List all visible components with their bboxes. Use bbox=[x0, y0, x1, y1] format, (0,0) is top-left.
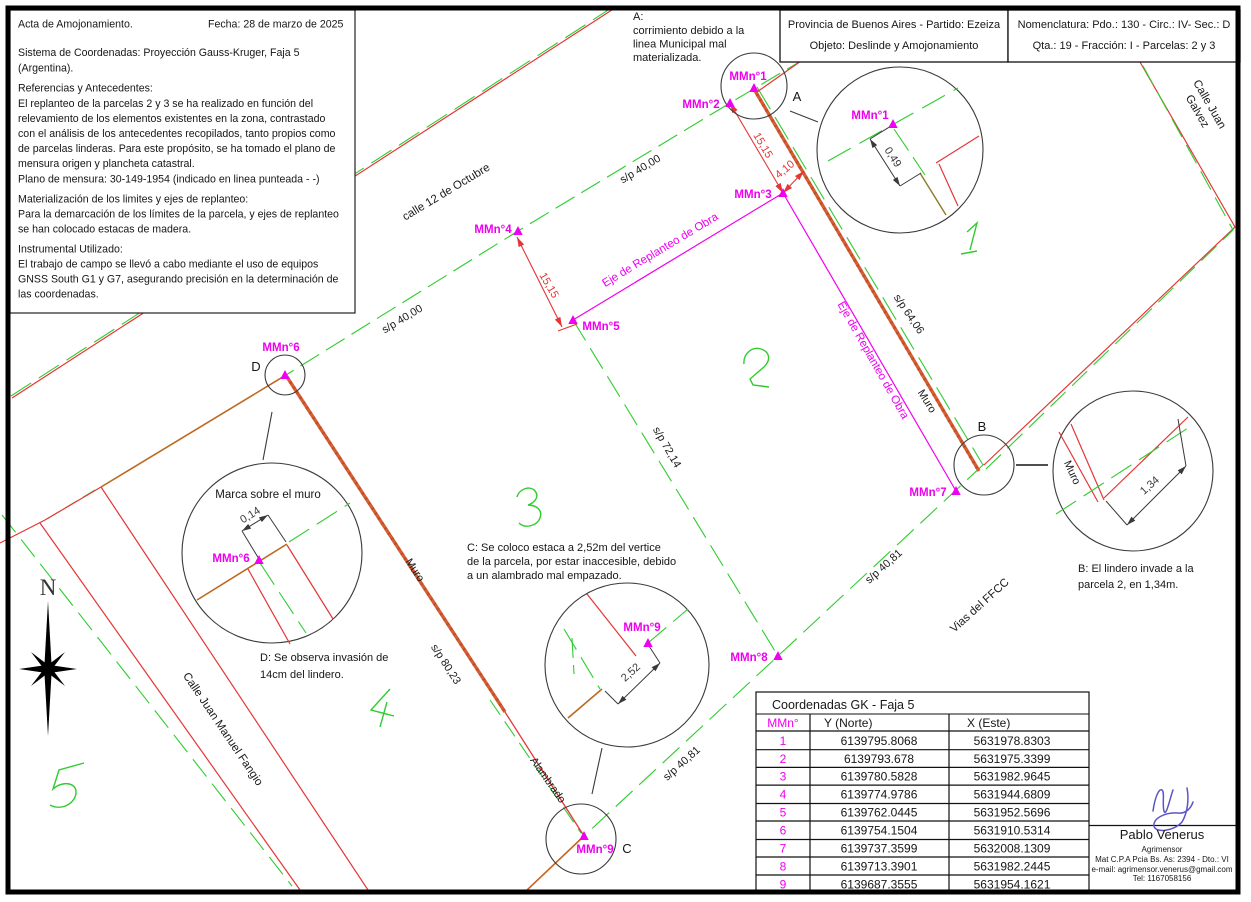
svg-text:6139774.9786: 6139774.9786 bbox=[841, 788, 918, 802]
svg-text:8: 8 bbox=[780, 860, 787, 874]
svg-text:5631978.8303: 5631978.8303 bbox=[974, 734, 1051, 748]
svg-text:relevamiento de los elementos: relevamiento de los elementos existentes… bbox=[18, 113, 326, 125]
svg-text:MMn°3: MMn°3 bbox=[734, 189, 771, 201]
svg-text:Para la demarcación de los lím: Para la demarcación de los límites de la… bbox=[18, 208, 339, 220]
svg-text:A:: A: bbox=[633, 11, 643, 23]
svg-text:5631975.3399: 5631975.3399 bbox=[974, 752, 1051, 766]
svg-text:corrimiento debido a la: corrimiento debido a la bbox=[633, 25, 745, 37]
svg-text:D: Se observa invasión de: D: Se observa invasión de bbox=[260, 652, 388, 664]
svg-text:MMn°1: MMn°1 bbox=[851, 110, 889, 122]
svg-text:MMn°1: MMn°1 bbox=[729, 71, 767, 83]
svg-text:Tel: 1167058156: Tel: 1167058156 bbox=[1133, 874, 1192, 883]
svg-text:6139780.5828: 6139780.5828 bbox=[841, 770, 918, 784]
svg-text:El trabajo de campo se llevó a: El trabajo de campo se llevó a cabo medi… bbox=[18, 259, 318, 271]
svg-text:X (Este): X (Este) bbox=[967, 716, 1010, 730]
svg-text:El replanteo de la parcelas 2: El replanteo de la parcelas 2 y 3 se ha … bbox=[18, 98, 313, 110]
svg-text:Plano de mensura: 30-149-1954: Plano de mensura: 30-149-1954 (indicado … bbox=[18, 173, 320, 185]
svg-text:Pablo Venerus: Pablo Venerus bbox=[1120, 827, 1205, 842]
svg-text:6139793.678: 6139793.678 bbox=[844, 752, 914, 766]
svg-text:5631982.9645: 5631982.9645 bbox=[974, 770, 1051, 784]
svg-text:se han colocado estacas de mad: se han colocado estacas de madera. bbox=[18, 223, 191, 235]
svg-text:N: N bbox=[40, 575, 57, 600]
svg-text:C: Se coloco estaca a 2,52m de: C: Se coloco estaca a 2,52m del vertice bbox=[467, 542, 661, 554]
svg-text:A: A bbox=[793, 89, 802, 104]
svg-text:Agrimensor: Agrimensor bbox=[1142, 845, 1183, 854]
svg-text:Referencias y Antecedentes:: Referencias y Antecedentes: bbox=[18, 83, 153, 95]
svg-text:MMn°5: MMn°5 bbox=[582, 321, 620, 333]
svg-text:Provincia de Buenos Aires - Pa: Provincia de Buenos Aires - Partido: Eze… bbox=[788, 19, 1001, 31]
svg-text:de la parcela, por estar inacc: de la parcela, por estar inaccesible, de… bbox=[467, 556, 676, 568]
svg-text:MMn°9: MMn°9 bbox=[623, 622, 660, 634]
svg-text:e-mail: agrimensor.venerus@gma: e-mail: agrimensor.venerus@gmail.com bbox=[1091, 865, 1232, 874]
svg-text:7: 7 bbox=[780, 842, 787, 856]
svg-text:MMn°4: MMn°4 bbox=[474, 224, 512, 236]
svg-text:5631954.1621: 5631954.1621 bbox=[974, 878, 1051, 892]
svg-text:MMn°8: MMn°8 bbox=[730, 652, 768, 664]
svg-text:B: B bbox=[978, 419, 987, 434]
svg-text:Nomenclatura: Pdo.: 130 - Circ: Nomenclatura: Pdo.: 130 - Circ.: IV- Sec… bbox=[1018, 19, 1231, 31]
svg-text:de parcelas linderas. Para est: de parcelas linderas. Para este propósit… bbox=[18, 143, 336, 155]
svg-text:9: 9 bbox=[780, 878, 787, 892]
svg-text:linea Municipal mal: linea Municipal mal bbox=[633, 39, 727, 51]
svg-text:6139713.3901: 6139713.3901 bbox=[841, 860, 918, 874]
svg-text:5631952.5696: 5631952.5696 bbox=[974, 806, 1051, 820]
svg-text:MMn°6: MMn°6 bbox=[212, 553, 249, 565]
svg-text:6139795.8068: 6139795.8068 bbox=[841, 734, 918, 748]
svg-text:Coordenadas GK - Faja 5: Coordenadas GK - Faja 5 bbox=[772, 698, 914, 712]
svg-text:Instrumental Utilizado:: Instrumental Utilizado: bbox=[18, 244, 123, 256]
svg-text:parcela 2, en 1,34m.: parcela 2, en 1,34m. bbox=[1078, 579, 1178, 591]
svg-text:a un alambrado mal empazado.: a un alambrado mal empazado. bbox=[467, 570, 622, 582]
svg-text:5: 5 bbox=[780, 806, 787, 820]
svg-text:Materialización de los limites: Materialización de los limites y ejes de… bbox=[18, 193, 248, 205]
svg-text:MMn°: MMn° bbox=[767, 716, 799, 730]
svg-text:Qta.: 19 - Fracción: I - Parce: Qta.: 19 - Fracción: I - Parcelas: 2 y 3 bbox=[1033, 40, 1216, 52]
svg-text:C: C bbox=[622, 841, 631, 856]
svg-text:Fecha: 28 de marzo de 2025: Fecha: 28 de marzo de 2025 bbox=[208, 18, 344, 30]
svg-text:4: 4 bbox=[780, 788, 787, 802]
svg-text:6139762.0445: 6139762.0445 bbox=[841, 806, 918, 820]
svg-text:B: El lindero invade a la: B: El lindero invade a la bbox=[1078, 563, 1194, 575]
svg-text:5632008.1309: 5632008.1309 bbox=[974, 842, 1051, 856]
svg-text:MMn°6: MMn°6 bbox=[262, 342, 299, 354]
svg-text:3: 3 bbox=[780, 770, 787, 784]
svg-text:con el análisis de los anteced: con el análisis de los antecedentes reco… bbox=[18, 128, 336, 140]
svg-text:mensura origen y plancheta cat: mensura origen y plancheta catastral. bbox=[18, 158, 195, 170]
svg-text:(Argentina).: (Argentina). bbox=[18, 62, 73, 74]
svg-text:Marca sobre el muro: Marca sobre el muro bbox=[215, 489, 320, 501]
svg-text:6139737.3599: 6139737.3599 bbox=[841, 842, 918, 856]
svg-text:MMn°7: MMn°7 bbox=[909, 487, 946, 499]
svg-text:5631944.6809: 5631944.6809 bbox=[974, 788, 1051, 802]
svg-text:14cm del lindero.: 14cm del lindero. bbox=[260, 669, 344, 681]
svg-text:Objeto: Deslinde y Amojonamien: Objeto: Deslinde y Amojonamiento bbox=[810, 40, 979, 52]
svg-text:materializada.: materializada. bbox=[633, 52, 701, 64]
svg-text:GNSS South G1 y G7, asegurando: GNSS South G1 y G7, asegurando precisión… bbox=[18, 274, 338, 286]
svg-text:5631910.5314: 5631910.5314 bbox=[974, 824, 1051, 838]
svg-text:MMn°2: MMn°2 bbox=[682, 99, 719, 111]
svg-text:5631982.2445: 5631982.2445 bbox=[974, 860, 1051, 874]
svg-text:Mat C.P.A Pcia Bs. As: 2394 -: Mat C.P.A Pcia Bs. As: 2394 - Dto.: VI bbox=[1095, 855, 1229, 864]
svg-text:2: 2 bbox=[780, 752, 787, 766]
svg-text:6139687.3555: 6139687.3555 bbox=[841, 878, 918, 892]
svg-text:Y (Norte): Y (Norte) bbox=[824, 716, 872, 730]
svg-text:6: 6 bbox=[780, 824, 787, 838]
svg-text:Acta de Amojonamiento.: Acta de Amojonamiento. bbox=[18, 18, 133, 30]
svg-text:D: D bbox=[251, 359, 260, 374]
svg-text:MMn°9: MMn°9 bbox=[576, 844, 613, 856]
svg-text:las coordenadas.: las coordenadas. bbox=[18, 289, 99, 301]
svg-text:1: 1 bbox=[780, 734, 787, 748]
svg-text:6139754.1504: 6139754.1504 bbox=[841, 824, 918, 838]
svg-text:Sistema de Coordenadas: Proyec: Sistema de Coordenadas: Proyección Gauss… bbox=[18, 47, 300, 59]
